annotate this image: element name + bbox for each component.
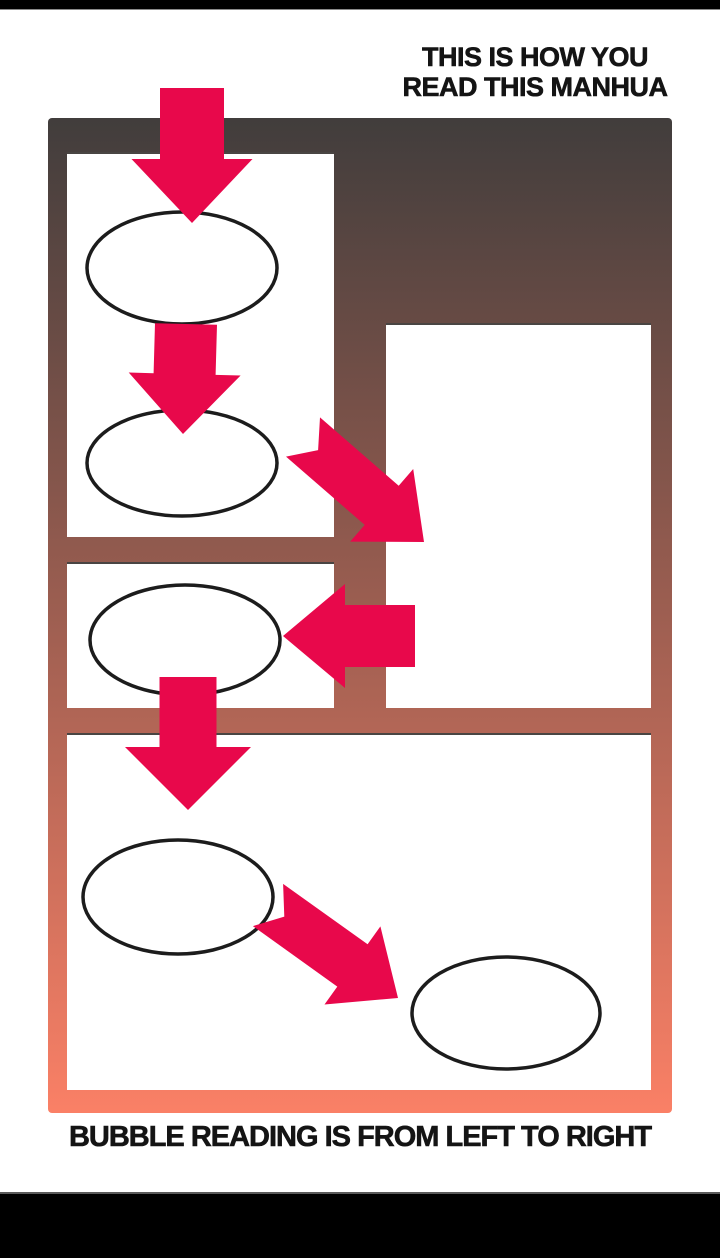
bottom-letterbox-bar [0, 1192, 720, 1258]
panel-3 [67, 562, 334, 708]
page-title-line-2: READ THIS MANHUA [368, 72, 702, 102]
top-letterbox-bar [0, 0, 720, 10]
panel-4 [67, 733, 651, 1090]
page-title: THIS IS HOW YOU READ THIS MANHUA [368, 42, 702, 102]
panel-1 [67, 152, 334, 537]
manhua-reading-guide-page: THIS IS HOW YOU READ THIS MANHUA BUBBLE … [0, 0, 720, 1258]
panel-2 [386, 323, 651, 708]
page-title-line-1: THIS IS HOW YOU [368, 42, 702, 72]
bottom-caption: BUBBLE READING IS FROM LEFT TO RIGHT [0, 1120, 720, 1154]
